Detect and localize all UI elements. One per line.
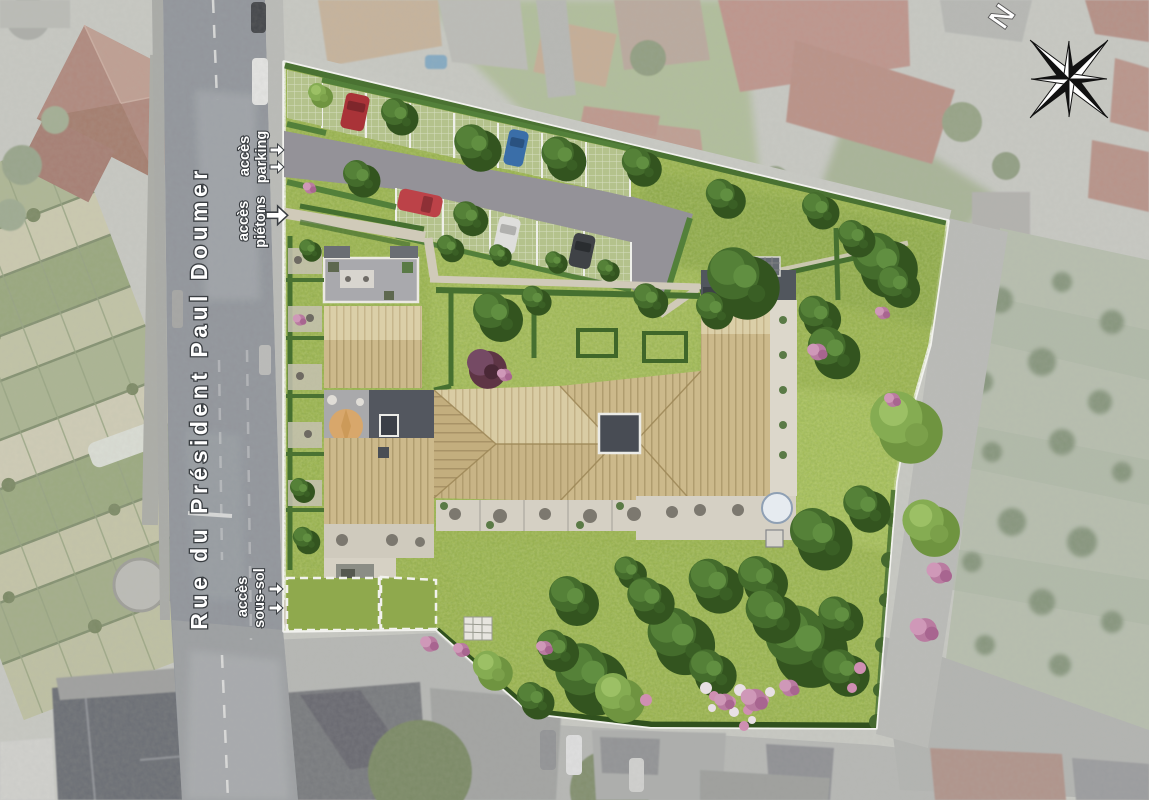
svg-text:accès: accès (237, 136, 253, 176)
svg-text:accès: accès (236, 201, 252, 241)
svg-text:piétons: piétons (253, 196, 269, 248)
svg-text:sous-sol: sous-sol (252, 568, 268, 628)
svg-text:accès: accès (235, 577, 251, 617)
svg-text:parking: parking (254, 131, 270, 183)
svg-text:Rue du Président Paul Doumer: Rue du Président Paul Doumer (186, 166, 212, 629)
